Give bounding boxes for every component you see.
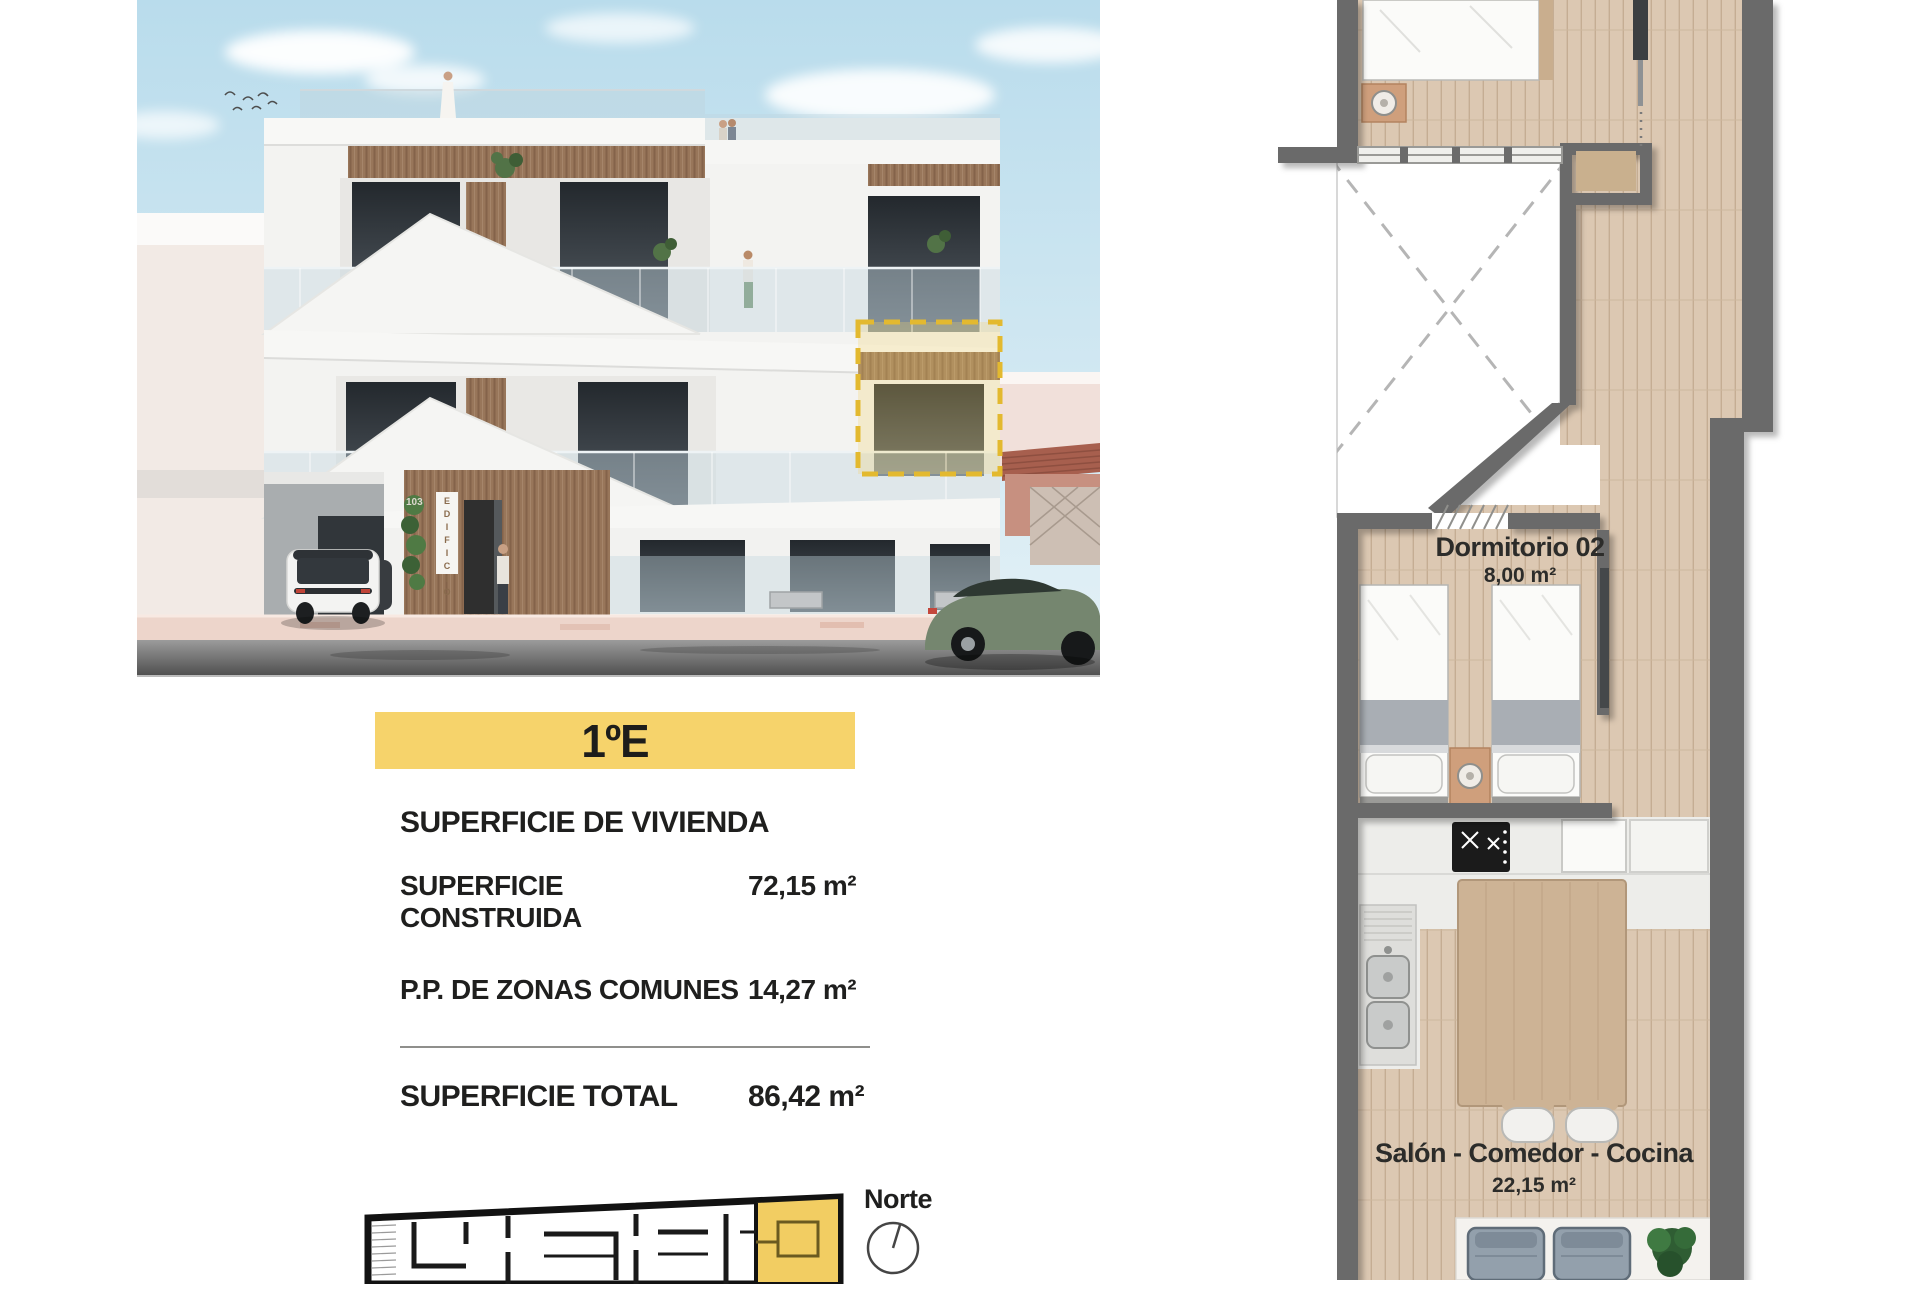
neighbor-building-left xyxy=(137,213,265,623)
cabinet xyxy=(1630,820,1708,872)
window-band-bedroom xyxy=(1358,147,1562,163)
kitchen-sink xyxy=(1360,905,1416,1065)
building-render-svg xyxy=(137,0,1100,677)
room-area: 8,00 m² xyxy=(1484,564,1556,587)
dining-table-set xyxy=(1458,880,1626,1142)
room-label: Dormitorio 02 xyxy=(1435,532,1604,562)
dining-chair xyxy=(1566,1100,1618,1142)
fridge xyxy=(1562,820,1626,872)
surface-row-label: SUPERFICIE CONSTRUIDA xyxy=(400,870,748,934)
closet-interior xyxy=(1576,151,1636,191)
dining-chair xyxy=(1502,1100,1554,1142)
room-area: 22,15 m² xyxy=(1492,1174,1576,1197)
patio xyxy=(1330,158,1568,517)
miniplan-svg xyxy=(358,1192,850,1284)
sofa-set xyxy=(1456,1218,1714,1280)
sliding-door-dorm02 xyxy=(1600,568,1609,708)
surface-row-construida: SUPERFICIE CONSTRUIDA 72,15 m² xyxy=(400,870,872,934)
unit-banner: 1ºE xyxy=(375,712,855,769)
entrance-sign-text: EDIFICIO xyxy=(437,496,457,574)
brochure-page: { "unit": { "label": "1ºE" }, "surface_p… xyxy=(0,0,1920,1280)
room-label: Salón - Comedor - Cocina xyxy=(1375,1138,1695,1168)
compass-icon xyxy=(864,1218,922,1276)
surface-panel: SUPERFICIE DE VIVIENDA SUPERFICIE CONSTR… xyxy=(400,806,872,1114)
north-label: Norte xyxy=(864,1184,944,1215)
surface-row-zonas-comunes: P.P. DE ZONAS COMUNES 14,27 m² xyxy=(400,974,872,1006)
entrance xyxy=(401,470,610,617)
sofa-seat xyxy=(1554,1228,1630,1280)
building-render xyxy=(137,0,1100,677)
unit-highlight-fill xyxy=(858,322,1000,474)
surface-total-row: SUPERFICIE TOTAL 86,42 m² xyxy=(400,1080,872,1114)
north-compass: Norte xyxy=(864,1184,944,1276)
bed-single xyxy=(1360,585,1448,805)
surface-row-label: P.P. DE ZONAS COMUNES xyxy=(400,974,748,1006)
surface-total-label: SUPERFICIE TOTAL xyxy=(400,1080,748,1114)
street-number: 103 xyxy=(406,497,423,508)
unit-label: 1ºE xyxy=(581,714,648,768)
surface-panel-title: SUPERFICIE DE VIVIENDA xyxy=(400,806,872,840)
sofa-seat xyxy=(1468,1228,1544,1280)
floorplan-svg: Dormitorio 02 8,00 m² Salón - Comedor - … xyxy=(1270,0,1790,1280)
surface-row-value: 14,27 m² xyxy=(748,974,872,1006)
surface-row-value: 72,15 m² xyxy=(748,870,872,902)
bed-single xyxy=(1492,585,1580,805)
entrance-door xyxy=(464,500,498,614)
stove-hob xyxy=(1452,822,1510,872)
surface-total-value: 86,42 m² xyxy=(748,1080,864,1114)
floorplan: Dormitorio 02 8,00 m² Salón - Comedor - … xyxy=(1270,0,1790,1280)
surface-divider xyxy=(400,1046,870,1048)
location-miniplan xyxy=(358,1192,850,1284)
